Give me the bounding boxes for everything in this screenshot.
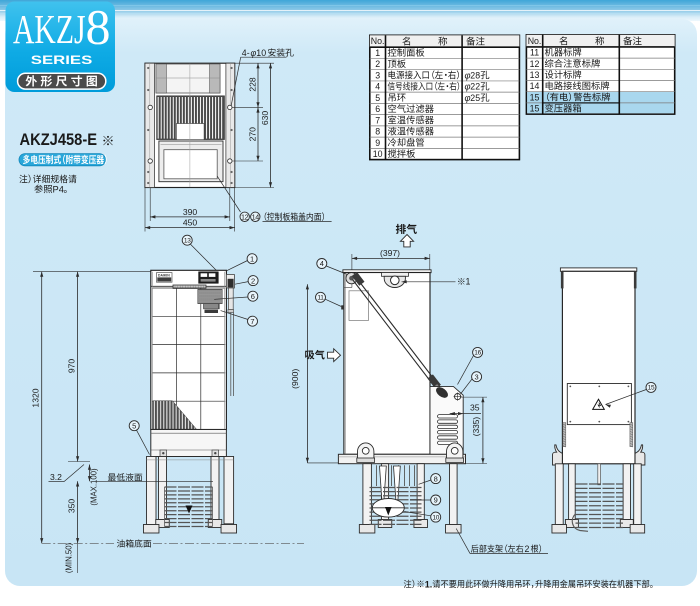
svg-text:10: 10 bbox=[373, 149, 383, 159]
svg-text:450: 450 bbox=[183, 218, 198, 228]
svg-text:SERIES: SERIES bbox=[31, 54, 93, 67]
svg-text:13: 13 bbox=[184, 238, 191, 245]
svg-text:630: 630 bbox=[260, 111, 270, 126]
svg-text:1320: 1320 bbox=[31, 388, 41, 407]
svg-text:(900): (900) bbox=[290, 369, 300, 389]
svg-text:2: 2 bbox=[525, 544, 530, 554]
svg-text:350: 350 bbox=[66, 499, 76, 514]
svg-text:25: 25 bbox=[470, 93, 480, 103]
svg-text:10: 10 bbox=[256, 48, 266, 58]
svg-text:2: 2 bbox=[375, 59, 380, 69]
svg-text:5: 5 bbox=[132, 421, 136, 430]
svg-text:12: 12 bbox=[530, 59, 540, 69]
svg-text:7: 7 bbox=[375, 115, 380, 125]
svg-text:6: 6 bbox=[251, 292, 255, 301]
svg-text:3.2: 3.2 bbox=[50, 472, 62, 482]
svg-text:8: 8 bbox=[86, 0, 111, 55]
svg-text:15: 15 bbox=[530, 104, 540, 114]
svg-text:P4: P4 bbox=[53, 184, 64, 194]
svg-text:970: 970 bbox=[66, 359, 76, 374]
svg-text:No.: No. bbox=[371, 36, 385, 46]
svg-text:6: 6 bbox=[375, 104, 380, 114]
svg-text:8: 8 bbox=[375, 127, 380, 137]
svg-text:28: 28 bbox=[470, 70, 480, 80]
svg-text:AKZJ: AKZJ bbox=[13, 6, 86, 52]
svg-text:AKZJ458-E: AKZJ458-E bbox=[20, 130, 98, 149]
svg-text:4: 4 bbox=[320, 259, 324, 268]
svg-text:4: 4 bbox=[375, 82, 380, 92]
svg-text:15: 15 bbox=[530, 92, 540, 102]
svg-text:8: 8 bbox=[434, 474, 438, 483]
svg-text:DAIKIN: DAIKIN bbox=[158, 274, 170, 278]
svg-text:10: 10 bbox=[432, 514, 439, 521]
svg-text:14: 14 bbox=[252, 212, 260, 221]
svg-text:5: 5 bbox=[375, 93, 380, 103]
svg-text:270: 270 bbox=[248, 127, 258, 142]
svg-text:9: 9 bbox=[434, 496, 438, 505]
svg-text:3: 3 bbox=[475, 372, 479, 381]
svg-text:(397): (397) bbox=[380, 248, 400, 258]
svg-text:No.: No. bbox=[528, 36, 542, 46]
svg-text:16: 16 bbox=[474, 350, 481, 357]
svg-text:15: 15 bbox=[648, 385, 655, 392]
svg-text:3: 3 bbox=[375, 70, 380, 80]
svg-text:11: 11 bbox=[530, 48, 539, 58]
svg-text:11: 11 bbox=[317, 295, 324, 302]
svg-text:228: 228 bbox=[248, 77, 258, 92]
svg-text:7: 7 bbox=[250, 317, 254, 326]
svg-text:22: 22 bbox=[470, 82, 480, 92]
svg-text:1: 1 bbox=[466, 277, 471, 287]
svg-text:1: 1 bbox=[250, 254, 254, 263]
svg-text:2: 2 bbox=[251, 276, 255, 285]
svg-text:(335): (335) bbox=[471, 417, 481, 437]
svg-text:1: 1 bbox=[375, 48, 380, 58]
svg-text:12: 12 bbox=[241, 212, 249, 221]
svg-text:4-: 4- bbox=[242, 48, 250, 58]
svg-text:14: 14 bbox=[530, 81, 540, 91]
svg-text:13: 13 bbox=[530, 70, 540, 80]
svg-text:1.: 1. bbox=[425, 579, 433, 589]
svg-text:390: 390 bbox=[183, 207, 198, 217]
svg-text:35: 35 bbox=[470, 403, 480, 413]
svg-text:9: 9 bbox=[375, 138, 380, 148]
svg-text:(MIN.50): (MIN.50) bbox=[65, 542, 74, 573]
svg-text:(MAX.100): (MAX.100) bbox=[90, 468, 99, 506]
